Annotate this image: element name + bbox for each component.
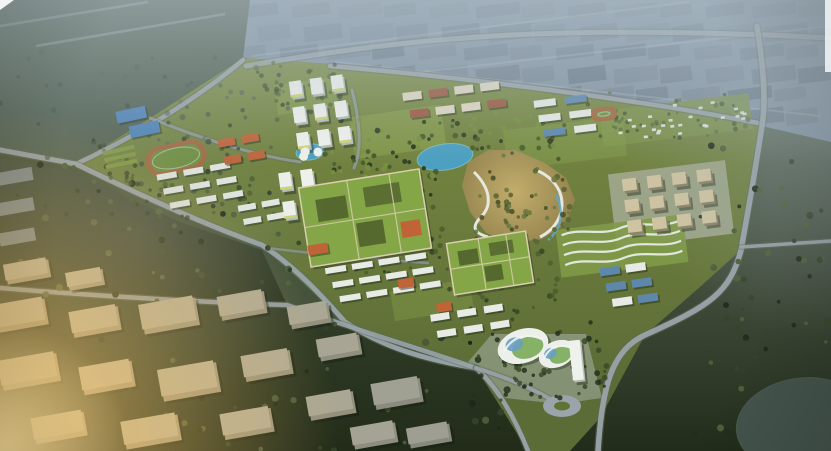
rendering-canvas <box>0 0 831 451</box>
frame-artifact-right <box>825 0 831 72</box>
aerial-campus-rendering <box>0 0 831 451</box>
vignette-overlay <box>0 0 831 451</box>
